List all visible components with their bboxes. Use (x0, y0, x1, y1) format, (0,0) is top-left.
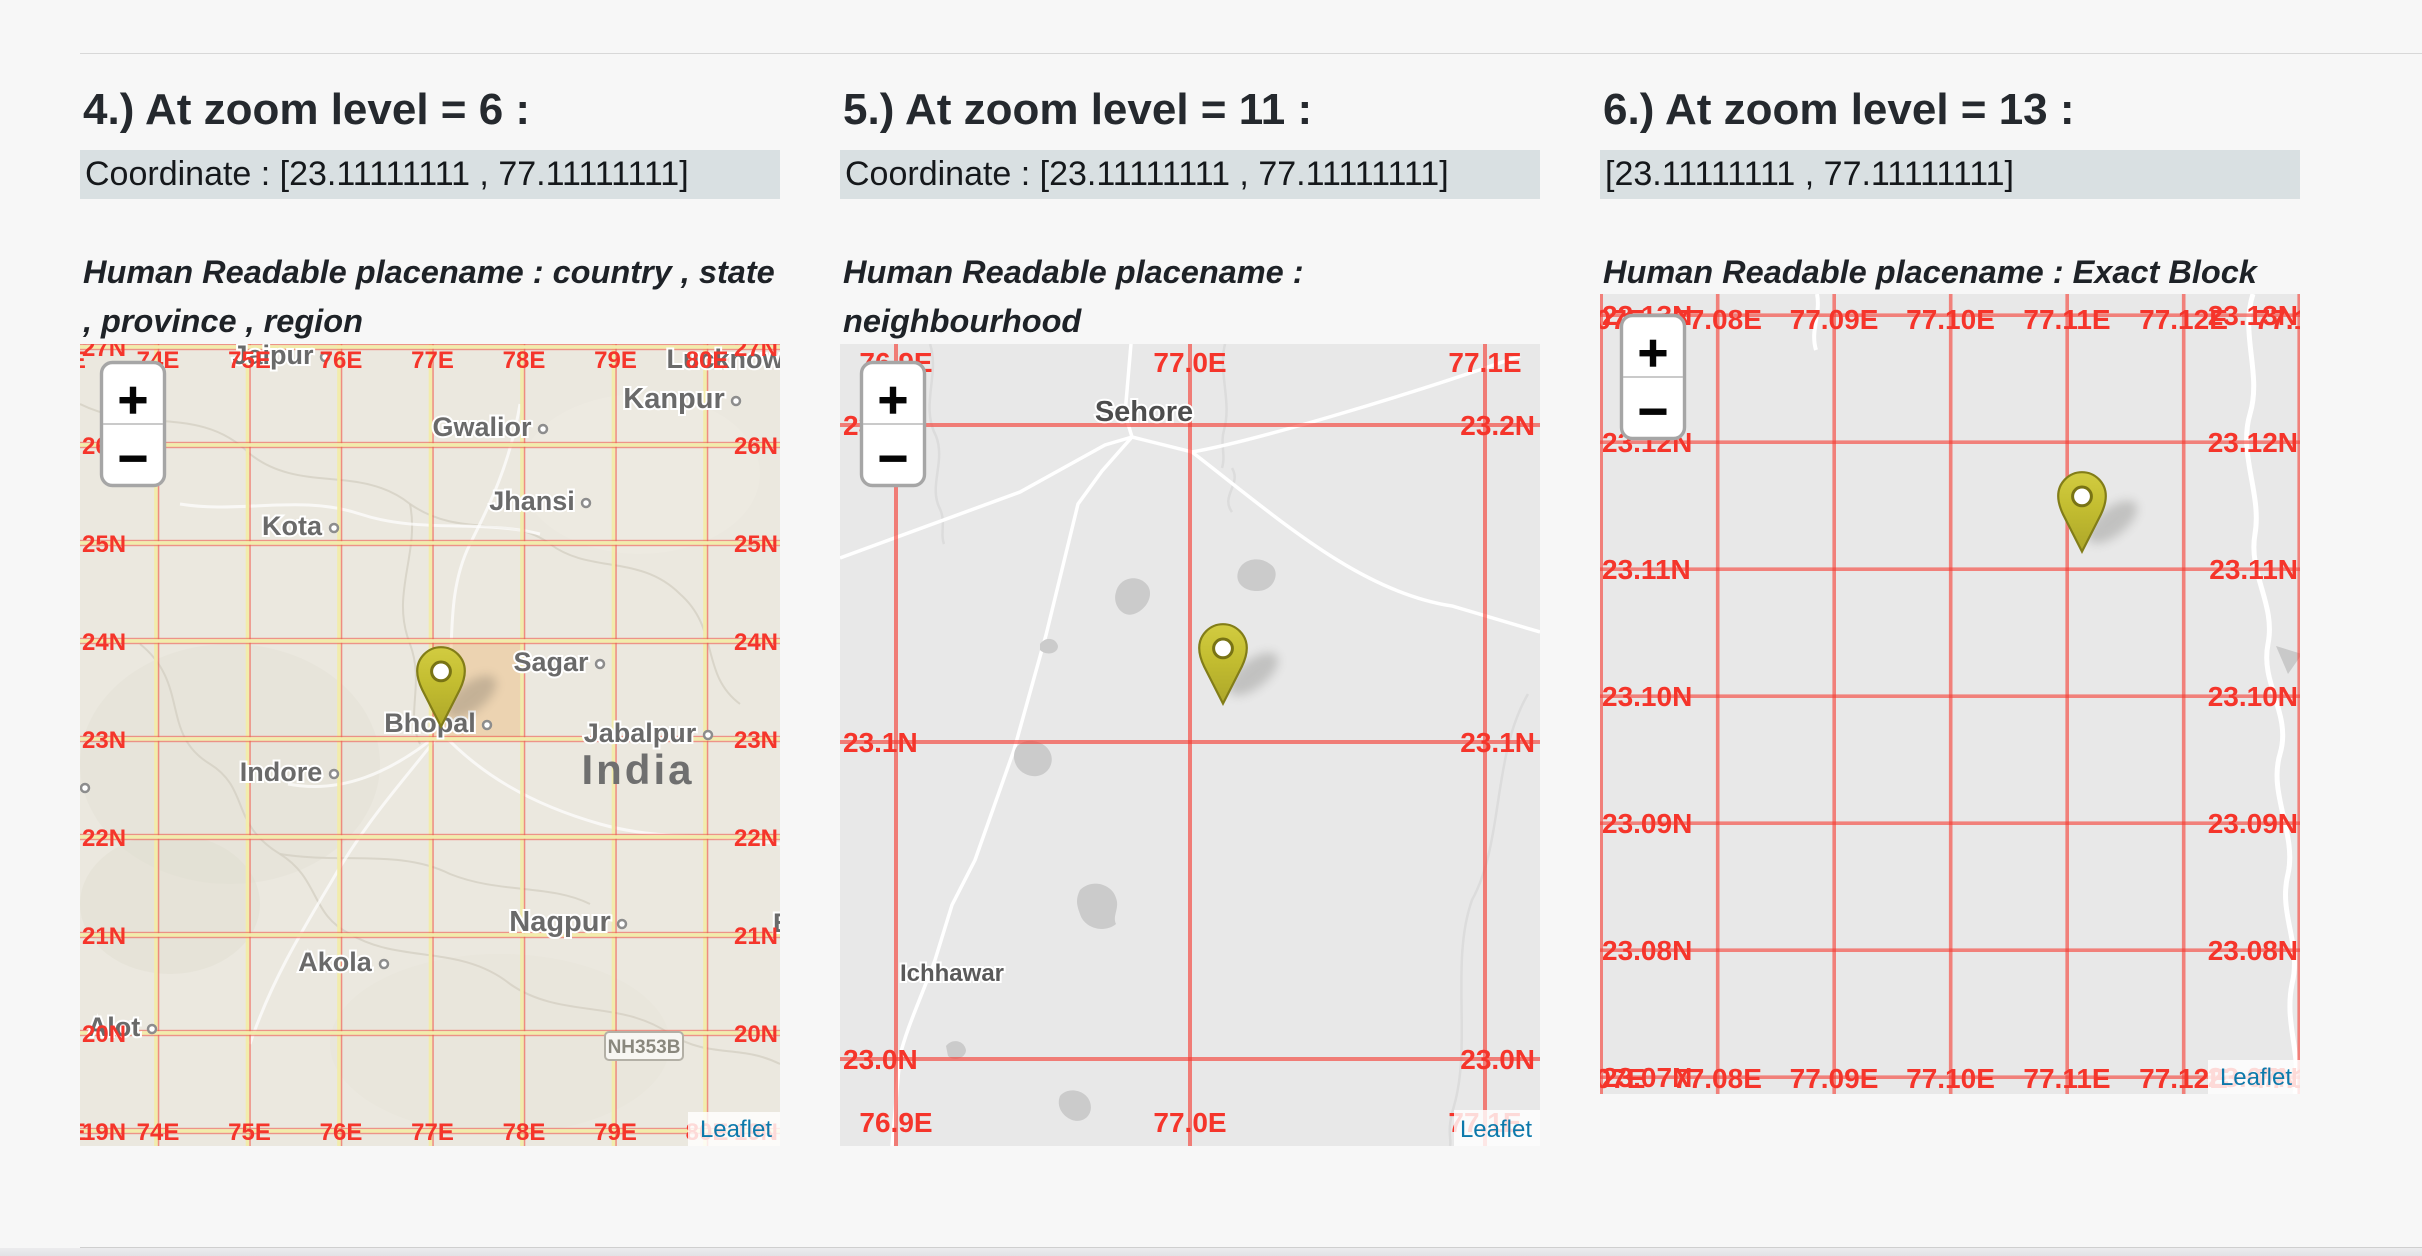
svg-text:23N: 23N (82, 727, 126, 754)
svg-text:77.09E: 77.09E (1790, 1063, 1879, 1094)
svg-text:Leaflet: Leaflet (700, 1116, 772, 1143)
svg-text:75E: 75E (228, 347, 271, 374)
svg-text:77.11E: 77.11E (2023, 1063, 2110, 1094)
svg-text:Jhansi: Jhansi (489, 486, 575, 516)
svg-text:21N: 21N (734, 923, 778, 950)
svg-text:24N: 24N (734, 629, 778, 656)
svg-text:23.1N: 23.1N (843, 727, 918, 758)
svg-text:Sagar: Sagar (513, 647, 589, 677)
svg-text:76.9E: 76.9E (859, 1107, 932, 1138)
svg-text:Ichhawar: Ichhawar (900, 960, 1004, 987)
svg-text:25N: 25N (734, 531, 778, 558)
svg-text:77.1E: 77.1E (1448, 347, 1521, 378)
svg-text:77E: 77E (411, 1119, 454, 1146)
svg-text:NH353B: NH353B (608, 1037, 681, 1058)
svg-text:Jabalpur: Jabalpur (584, 718, 697, 748)
svg-text:24N: 24N (82, 629, 126, 656)
svg-text:19N: 19N (82, 1119, 126, 1146)
svg-text:Leaflet: Leaflet (1460, 1116, 1532, 1143)
svg-text:25N: 25N (82, 531, 126, 558)
svg-text:79E: 79E (594, 347, 637, 374)
svg-text:21N: 21N (82, 923, 126, 950)
svg-text:75E: 75E (228, 1119, 271, 1146)
svg-text:27N: 27N (82, 344, 126, 362)
svg-text:23.12N: 23.12N (2208, 427, 2298, 458)
svg-text:26N: 26N (734, 433, 778, 460)
svg-text:India: India (581, 746, 694, 793)
svg-text:77.11E: 77.11E (2023, 304, 2110, 335)
svg-text:20N: 20N (82, 1021, 126, 1048)
svg-text:Leaflet: Leaflet (2220, 1064, 2292, 1091)
svg-text:Akola: Akola (298, 947, 373, 977)
svg-text:Nagpur: Nagpur (509, 906, 611, 938)
svg-text:Sehore: Sehore (1095, 396, 1193, 428)
svg-text:23.09N: 23.09N (1602, 808, 1692, 839)
svg-text:Kanpur: Kanpur (623, 383, 725, 415)
svg-text:22N: 22N (734, 825, 778, 852)
svg-text:77.0E: 77.0E (1153, 347, 1226, 378)
svg-text:23.07N: 23.07N (1602, 1062, 1692, 1093)
svg-text:78E: 78E (503, 1119, 546, 1146)
svg-text:77.0E: 77.0E (1153, 1107, 1226, 1138)
svg-text:22N: 22N (82, 825, 126, 852)
svg-text:23.10N: 23.10N (1602, 681, 1692, 712)
svg-text:74E: 74E (137, 1119, 180, 1146)
svg-text:76E: 76E (320, 347, 363, 374)
svg-text:23N: 23N (734, 727, 778, 754)
svg-text:Indore: Indore (240, 757, 323, 787)
svg-text:79E: 79E (594, 1119, 637, 1146)
svg-text:77.10E: 77.10E (1906, 304, 1995, 335)
svg-text:77.10E: 77.10E (1906, 1063, 1995, 1094)
svg-text:77.09E: 77.09E (1790, 304, 1879, 335)
svg-text:23.09N: 23.09N (2208, 808, 2298, 839)
svg-text:23.08N: 23.08N (1602, 935, 1692, 966)
svg-text:76E: 76E (320, 1119, 363, 1146)
svg-text:78E: 78E (503, 347, 546, 374)
svg-text:23.2N: 23.2N (1460, 410, 1535, 441)
svg-text:23.0N: 23.0N (843, 1044, 918, 1075)
svg-text:23.13N: 23.13N (2208, 300, 2298, 331)
svg-text:Kota: Kota (262, 511, 323, 541)
svg-text:20N: 20N (734, 1021, 778, 1048)
svg-text:80E: 80E (686, 347, 729, 374)
svg-text:Gwalior: Gwalior (432, 412, 532, 442)
svg-text:23.1N: 23.1N (1460, 727, 1535, 758)
svg-text:23.11N: 23.11N (1602, 554, 1691, 585)
svg-text:23.10N: 23.10N (2208, 681, 2298, 712)
svg-text:23.11N: 23.11N (2209, 554, 2298, 585)
svg-text:23.08N: 23.08N (2208, 935, 2298, 966)
svg-text:23.0N: 23.0N (1460, 1044, 1535, 1075)
svg-text:77E: 77E (411, 347, 454, 374)
svg-text:27N: 27N (734, 344, 778, 362)
